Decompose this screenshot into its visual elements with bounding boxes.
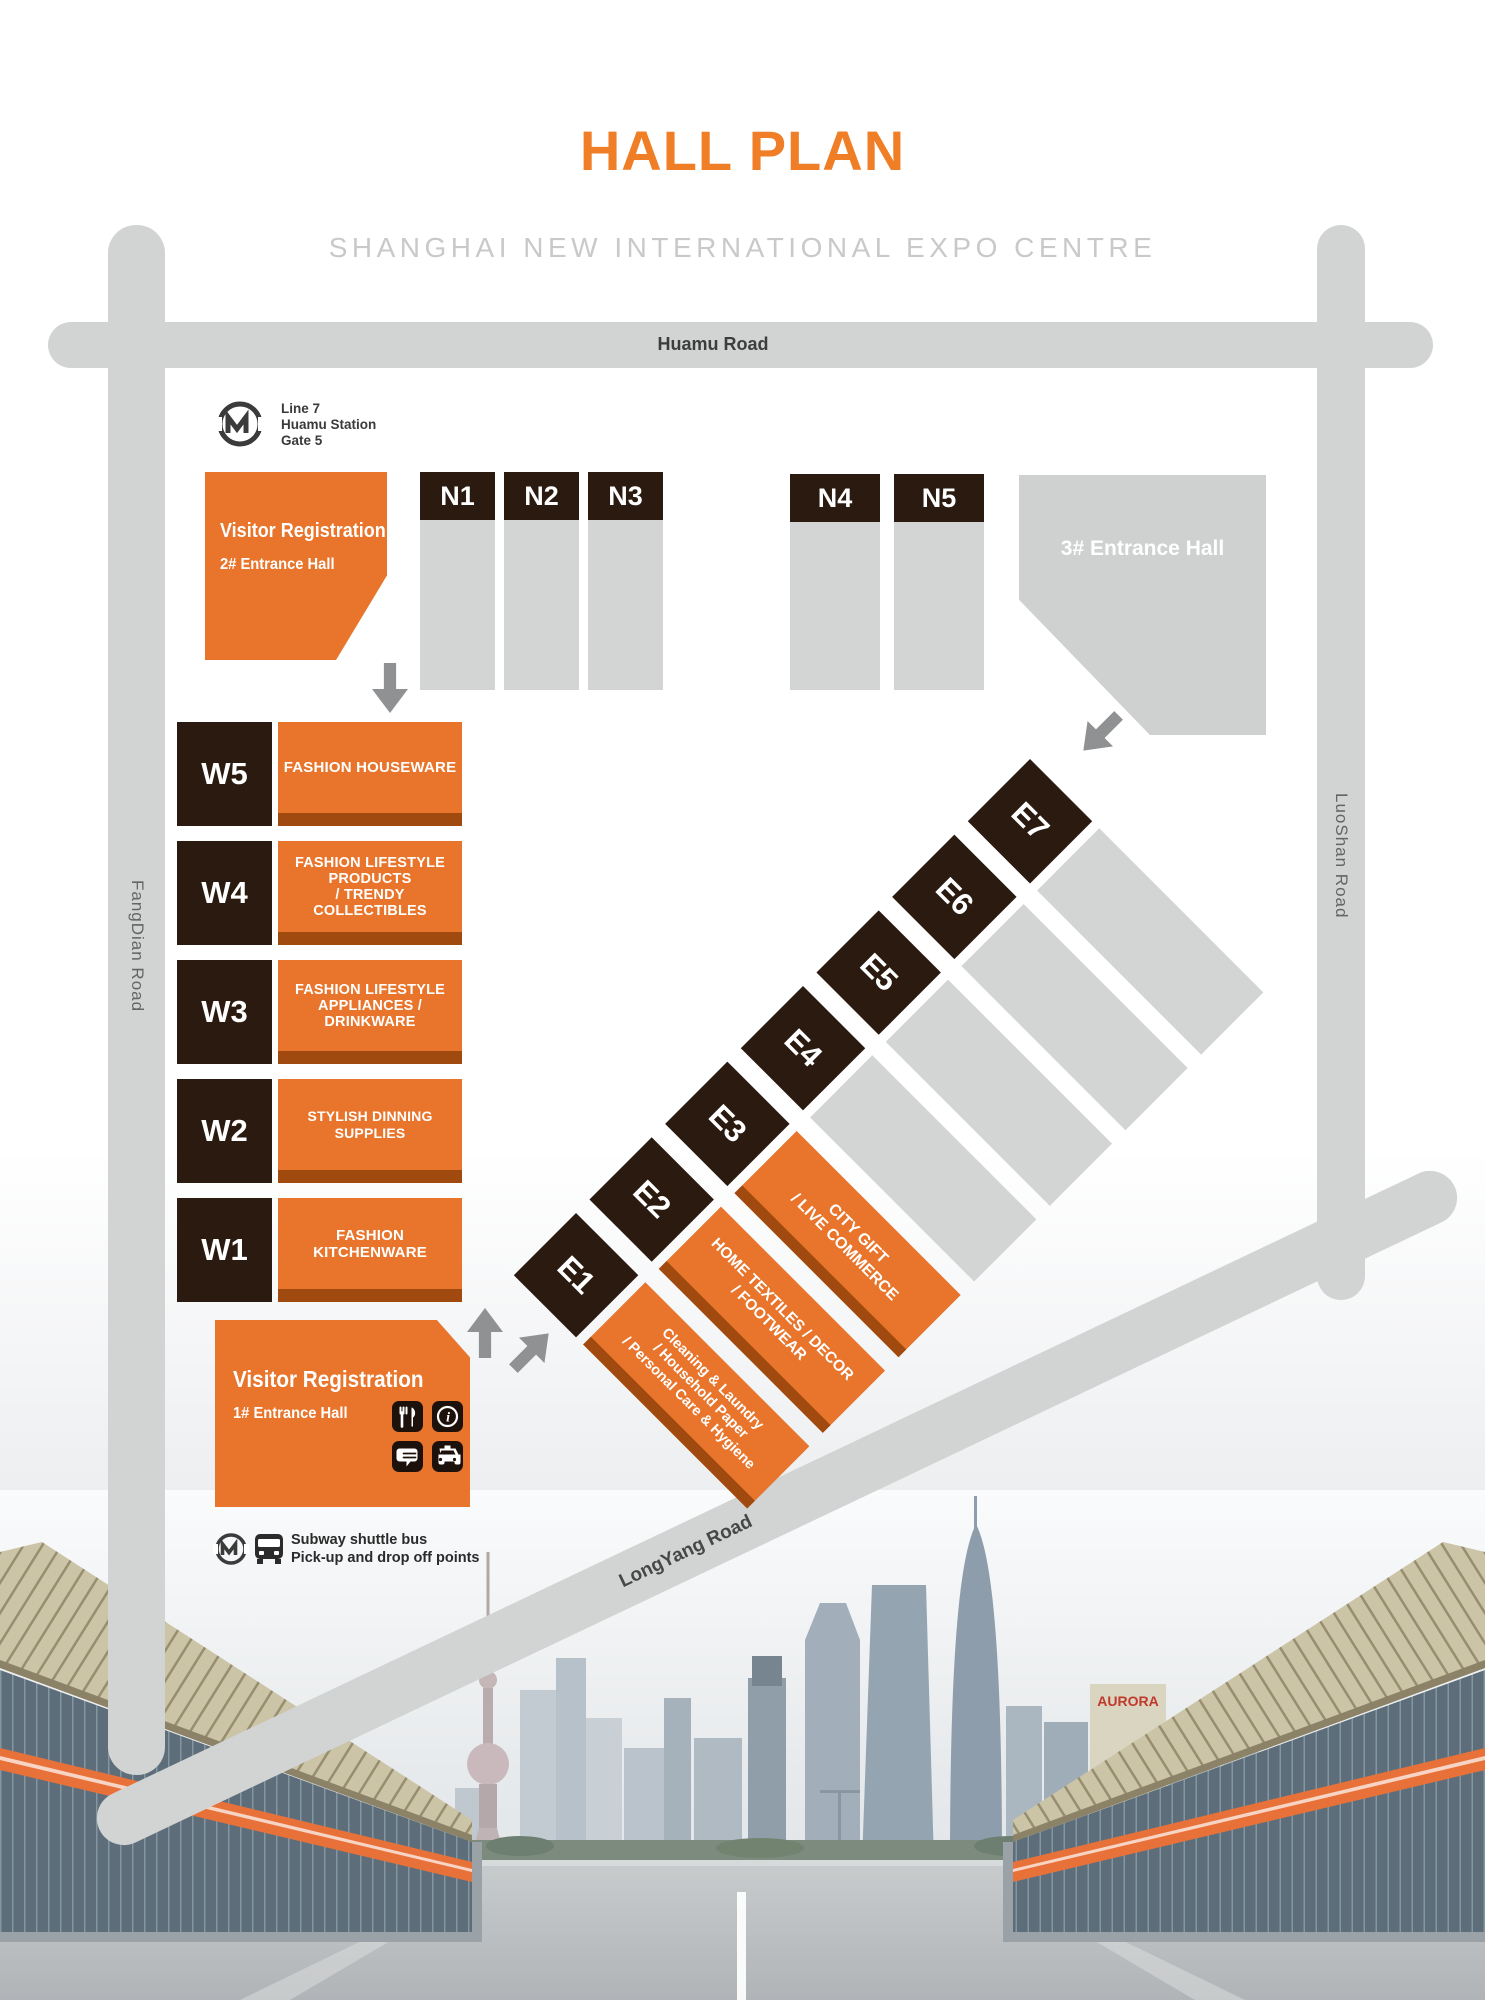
metro-line: Line 7 [281, 401, 376, 417]
hall-e7-id: E7 [1004, 795, 1056, 847]
hall-n4-label: N4 [818, 483, 853, 514]
page-title: HALL PLAN [0, 118, 1485, 183]
registration1-hall: 1# Entrance Hall [233, 1405, 348, 1423]
hall-w2: W2 [177, 1079, 272, 1183]
hall-plan-poster: AURORA [0, 0, 1485, 2000]
taxi-icon [432, 1441, 463, 1472]
hall-w1-body: FASHION KITCHENWARE [278, 1198, 462, 1302]
hall-w1-label: FASHION KITCHENWARE [278, 1198, 462, 1289]
hall-w2-label: STYLISH DINNING SUPPLIES [278, 1079, 462, 1170]
huamu-road-label: Huamu Road [613, 334, 813, 355]
registration2-title: Visitor Registration [220, 520, 386, 543]
hall-e4-id: E4 [777, 1022, 829, 1074]
metro-gate: Gate 5 [281, 433, 376, 449]
hall-w4-shadow [278, 932, 462, 945]
hall-n2: N2 [504, 472, 579, 520]
hall-e5-id: E5 [853, 946, 905, 998]
registration1-title: Visitor Registration [233, 1366, 424, 1393]
hall-w3-label: FASHION LIFESTYLE APPLIANCES / DRINKWARE [278, 960, 462, 1051]
hall-e2-id: E2 [626, 1173, 678, 1225]
chat-icon [392, 1441, 423, 1472]
hall-n5: N5 [894, 474, 984, 522]
metro-station-info: Line 7 Huamu Station Gate 5 [281, 401, 376, 449]
hall-n3: N3 [588, 472, 663, 520]
luoshan-road [1317, 225, 1365, 1300]
hall-w5: W5 [177, 722, 272, 826]
entrance-hall-3-label: 3# Entrance Hall [1019, 537, 1266, 561]
metro-logo-icon [215, 399, 265, 449]
visitor-registration-1: Visitor Registration 1# Entrance Hall i [215, 1320, 470, 1507]
luoshan-road-label: LuoShan Road [1331, 793, 1351, 918]
hall-w3-id: W3 [201, 994, 248, 1030]
entrance-hall-3: 3# Entrance Hall [1019, 475, 1266, 735]
info-icon: i [432, 1401, 463, 1432]
fangdian-road-label: FangDian Road [127, 880, 147, 1012]
hall-n5-label: N5 [922, 483, 957, 514]
visitor-registration-2: Visitor Registration 2# Entrance Hall [205, 472, 387, 660]
aurora-sign: AURORA [1097, 1693, 1158, 1709]
registration2-hall: 2# Entrance Hall [220, 556, 335, 574]
metro-station: Huamu Station [281, 417, 376, 433]
hall-n2-label: N2 [524, 481, 559, 512]
hall-w1-shadow [278, 1289, 462, 1302]
hall-w5-label: FASHION HOUSEWARE [278, 722, 462, 813]
restaurant-icon [392, 1401, 423, 1432]
hall-n3-body [588, 520, 663, 690]
hall-w5-shadow [278, 813, 462, 826]
hall-n2-body [504, 520, 579, 690]
hall-e3-id: E3 [701, 1098, 753, 1150]
hall-w2-shadow [278, 1170, 462, 1183]
hall-w3-shadow [278, 1051, 462, 1064]
hall-n4: N4 [790, 474, 880, 522]
hall-w3-body: FASHION LIFESTYLE APPLIANCES / DRINKWARE [278, 960, 462, 1064]
hall-n4-body [790, 522, 880, 690]
hall-w3: W3 [177, 960, 272, 1064]
legend-text: Subway shuttle bus Pick-up and drop off … [291, 1531, 480, 1567]
hall-w5-id: W5 [201, 756, 248, 792]
hall-w1: W1 [177, 1198, 272, 1302]
hall-w2-id: W2 [201, 1113, 248, 1149]
down-arrow-icon [372, 663, 408, 713]
svg-text:i: i [446, 1411, 450, 1426]
hall-e1-id: E1 [550, 1249, 602, 1301]
hall-n3-label: N3 [608, 481, 643, 512]
hall-n1: N1 [420, 472, 495, 520]
hall-w5-body: FASHION HOUSEWARE [278, 722, 462, 826]
hall-w1-id: W1 [201, 1232, 248, 1268]
legend-line2: Pick-up and drop off points [291, 1549, 480, 1567]
legend-metro-logo-icon [213, 1531, 249, 1567]
hall-n1-body [420, 520, 495, 690]
hall-n5-body [894, 522, 984, 690]
down-left-arrow-icon [1071, 703, 1132, 764]
hall-w4-label: FASHION LIFESTYLE PRODUCTS / TRENDY COLL… [278, 841, 462, 932]
hall-w2-body: STYLISH DINNING SUPPLIES [278, 1079, 462, 1183]
hall-n1-label: N1 [440, 481, 475, 512]
page-subtitle: SHANGHAI NEW INTERNATIONAL EXPO CENTRE [0, 232, 1485, 264]
legend-line1: Subway shuttle bus [291, 1531, 480, 1549]
bus-icon [251, 1531, 287, 1567]
hall-w4-body: FASHION LIFESTYLE PRODUCTS / TRENDY COLL… [278, 841, 462, 945]
hall-w4: W4 [177, 841, 272, 945]
hall-w4-id: W4 [201, 875, 248, 911]
hall-e6-id: E6 [928, 871, 980, 923]
